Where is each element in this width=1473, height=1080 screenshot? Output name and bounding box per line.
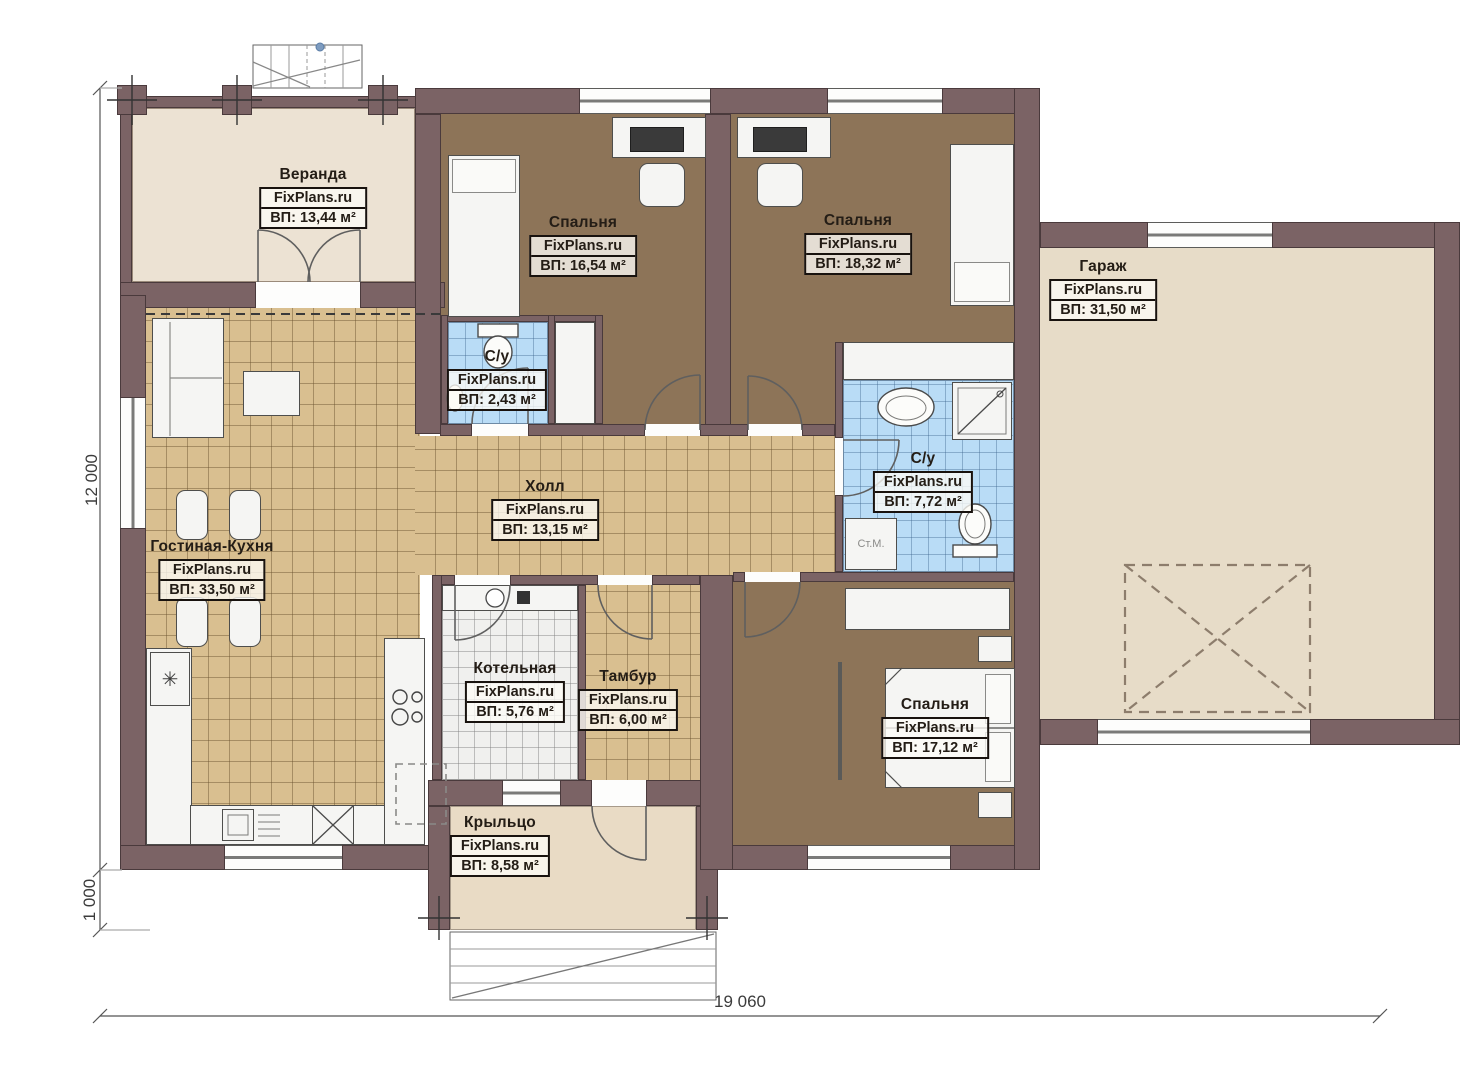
room-area: ВП: 5,76 м² bbox=[467, 701, 563, 721]
door-opening bbox=[455, 575, 510, 585]
wardrobe bbox=[845, 588, 1010, 630]
wall bbox=[1434, 222, 1460, 745]
wall bbox=[120, 295, 146, 398]
room-label-bath-small: С/у FixPlans.ru ВП: 2,43 м² bbox=[447, 348, 547, 411]
room-name: Спальня bbox=[549, 214, 617, 232]
wall bbox=[835, 342, 843, 438]
watermark: FixPlans.ru bbox=[449, 371, 545, 389]
dining-chair bbox=[176, 597, 208, 647]
watermark: FixPlans.ru bbox=[452, 837, 548, 855]
room-area: ВП: 13,15 м² bbox=[493, 519, 597, 539]
shower bbox=[952, 382, 1012, 440]
wall bbox=[1310, 719, 1460, 745]
kitchen-counter bbox=[190, 805, 386, 845]
room-info-box: FixPlans.ru ВП: 8,58 м² bbox=[450, 835, 550, 877]
window bbox=[1148, 222, 1272, 248]
wall bbox=[733, 572, 745, 582]
washing-machine-label: Ст.М. bbox=[845, 538, 897, 550]
door-opening bbox=[472, 424, 528, 436]
wall bbox=[120, 108, 132, 295]
wall bbox=[700, 424, 748, 436]
watermark: FixPlans.ru bbox=[261, 189, 365, 207]
watermark: FixPlans.ru bbox=[580, 691, 676, 709]
sofa bbox=[152, 318, 224, 438]
room-name: Крыльцо bbox=[464, 814, 536, 832]
room-area: ВП: 16,54 м² bbox=[531, 255, 635, 275]
window bbox=[503, 780, 560, 806]
room-label-bedroom-1: Спальня FixPlans.ru ВП: 16,54 м² bbox=[529, 214, 637, 277]
window bbox=[808, 845, 950, 870]
wall bbox=[428, 780, 503, 806]
door-opening bbox=[835, 438, 843, 495]
fridge: ✳ bbox=[150, 652, 190, 706]
room-info-box: FixPlans.ru ВП: 17,12 м² bbox=[881, 717, 989, 759]
room-label-porch: Крыльцо FixPlans.ru ВП: 8,58 м² bbox=[450, 814, 550, 877]
room-name: Гостиная-Кухня bbox=[150, 538, 273, 556]
wall bbox=[1014, 88, 1040, 870]
room-area: ВП: 17,12 м² bbox=[883, 737, 987, 757]
watermark: FixPlans.ru bbox=[160, 561, 264, 579]
kitchen-counter bbox=[384, 638, 425, 845]
dining-chair bbox=[229, 490, 261, 540]
column bbox=[368, 85, 398, 115]
door-opening bbox=[598, 575, 652, 585]
room-label-bedroom-3: Спальня FixPlans.ru ВП: 17,12 м² bbox=[881, 696, 989, 759]
bedroom-1-closet bbox=[555, 322, 595, 424]
snowflake-icon: ✳ bbox=[162, 667, 179, 692]
room-info-box: FixPlans.ru ВП: 31,50 м² bbox=[1049, 279, 1157, 321]
watermark: FixPlans.ru bbox=[493, 501, 597, 519]
wall bbox=[652, 575, 700, 585]
door-opening bbox=[256, 282, 360, 308]
watermark: FixPlans.ru bbox=[806, 235, 910, 253]
window bbox=[120, 398, 146, 528]
room-label-bedroom-2: Спальня FixPlans.ru ВП: 18,32 м² bbox=[804, 212, 912, 275]
room-info-box: FixPlans.ru ВП: 6,00 м² bbox=[578, 689, 678, 731]
watermark: FixPlans.ru bbox=[883, 719, 987, 737]
room-name: С/у bbox=[485, 348, 510, 366]
window bbox=[225, 845, 342, 870]
room-name: С/у bbox=[911, 450, 936, 468]
room-area: ВП: 8,58 м² bbox=[452, 855, 548, 875]
garage-door bbox=[1098, 719, 1310, 745]
room-area: ВП: 6,00 м² bbox=[580, 709, 676, 729]
room-area: ВП: 7,72 м² bbox=[875, 491, 971, 511]
room-name: Тамбур bbox=[599, 668, 656, 686]
wall bbox=[510, 575, 598, 585]
room-area: ВП: 33,50 м² bbox=[160, 579, 264, 599]
room-info-box: FixPlans.ru ВП: 5,76 м² bbox=[465, 681, 565, 723]
wall bbox=[705, 114, 731, 434]
dining-chair bbox=[176, 490, 208, 540]
room-label-living-kitchen: Гостиная-Кухня FixPlans.ru ВП: 33,50 м² bbox=[150, 538, 273, 601]
room-name: Котельная bbox=[474, 660, 557, 678]
room-info-box: FixPlans.ru ВП: 13,44 м² bbox=[259, 187, 367, 229]
wall bbox=[440, 424, 472, 436]
room-area: ВП: 18,32 м² bbox=[806, 253, 910, 273]
wall bbox=[802, 424, 835, 436]
pillow bbox=[985, 674, 1011, 724]
wall bbox=[120, 528, 146, 870]
room-area: ВП: 13,44 м² bbox=[261, 207, 365, 227]
column bbox=[117, 85, 147, 115]
wall bbox=[595, 315, 603, 424]
room-info-box: FixPlans.ru ВП: 18,32 м² bbox=[804, 233, 912, 275]
door-opening bbox=[748, 424, 802, 436]
wall bbox=[1040, 222, 1148, 248]
window bbox=[580, 88, 710, 114]
nightstand bbox=[978, 792, 1012, 818]
wall bbox=[432, 575, 442, 780]
door-opening bbox=[645, 424, 700, 436]
dimension-height-main: 12 000 bbox=[82, 440, 102, 520]
room-name: Спальня bbox=[901, 696, 969, 714]
window bbox=[828, 88, 942, 114]
boiler-shelf bbox=[442, 585, 578, 611]
room-label-garage: Гараж FixPlans.ru ВП: 31,50 м² bbox=[1049, 258, 1157, 321]
room-name: Веранда bbox=[279, 166, 346, 184]
kitchen-cabinet bbox=[312, 805, 354, 845]
watermark: FixPlans.ru bbox=[875, 473, 971, 491]
column bbox=[222, 85, 252, 115]
room-label-tambour: Тамбур FixPlans.ru ВП: 6,00 м² bbox=[578, 668, 678, 731]
room-area: ВП: 31,50 м² bbox=[1051, 299, 1155, 319]
watermark: FixPlans.ru bbox=[531, 237, 635, 255]
printer bbox=[753, 127, 807, 152]
pillow bbox=[985, 732, 1011, 782]
room-info-box: FixPlans.ru ВП: 33,50 м² bbox=[158, 559, 266, 601]
room-label-veranda: Веранда FixPlans.ru ВП: 13,44 м² bbox=[259, 166, 367, 229]
chair bbox=[639, 163, 685, 207]
wall bbox=[528, 424, 645, 436]
room-name: Гараж bbox=[1079, 258, 1126, 276]
room-info-box: FixPlans.ru ВП: 13,15 м² bbox=[491, 499, 599, 541]
door-opening bbox=[592, 780, 646, 806]
room-info-box: FixPlans.ru ВП: 7,72 м² bbox=[873, 471, 973, 513]
pillow bbox=[954, 262, 1010, 302]
pillow bbox=[452, 159, 516, 193]
wall bbox=[835, 495, 843, 572]
watermark: FixPlans.ru bbox=[467, 683, 563, 701]
room-area: ВП: 2,43 м² bbox=[449, 389, 545, 409]
door-opening bbox=[745, 572, 800, 582]
wall bbox=[1272, 222, 1460, 248]
dimension-height-porch: 1 000 bbox=[80, 865, 100, 935]
floor-plan: ✳ Ст.М. bbox=[0, 0, 1473, 1080]
mirror bbox=[838, 662, 842, 780]
coffee-table bbox=[243, 371, 300, 416]
wall bbox=[700, 575, 733, 870]
dimension-width-total: 19 060 bbox=[688, 992, 792, 1012]
room-label-bath-big: С/у FixPlans.ru ВП: 7,72 м² bbox=[873, 450, 973, 513]
dining-chair bbox=[229, 597, 261, 647]
chair bbox=[757, 163, 803, 207]
room-label-hall: Холл FixPlans.ru ВП: 13,15 м² bbox=[491, 478, 599, 541]
wall bbox=[710, 88, 828, 114]
veranda-stairs bbox=[253, 43, 362, 88]
room-label-boiler: Котельная FixPlans.ru ВП: 5,76 м² bbox=[465, 660, 565, 723]
watermark: FixPlans.ru bbox=[1051, 281, 1155, 299]
room-name: Холл bbox=[525, 478, 565, 496]
nightstand bbox=[978, 636, 1012, 662]
room-info-box: FixPlans.ru ВП: 2,43 м² bbox=[447, 369, 547, 411]
hall-floor bbox=[415, 436, 835, 575]
wall bbox=[428, 806, 450, 930]
printer bbox=[630, 127, 684, 152]
wall bbox=[560, 780, 592, 806]
bath-big-wardrobe bbox=[843, 342, 1014, 380]
porch-steps bbox=[450, 932, 716, 1000]
wall bbox=[415, 114, 441, 434]
wall bbox=[1040, 719, 1098, 745]
wall bbox=[120, 845, 225, 870]
room-info-box: FixPlans.ru ВП: 16,54 м² bbox=[529, 235, 637, 277]
wall bbox=[800, 572, 1014, 582]
room-name: Спальня bbox=[824, 212, 892, 230]
kitchen-sink bbox=[222, 809, 254, 841]
wall bbox=[415, 88, 580, 114]
wall bbox=[548, 315, 555, 424]
